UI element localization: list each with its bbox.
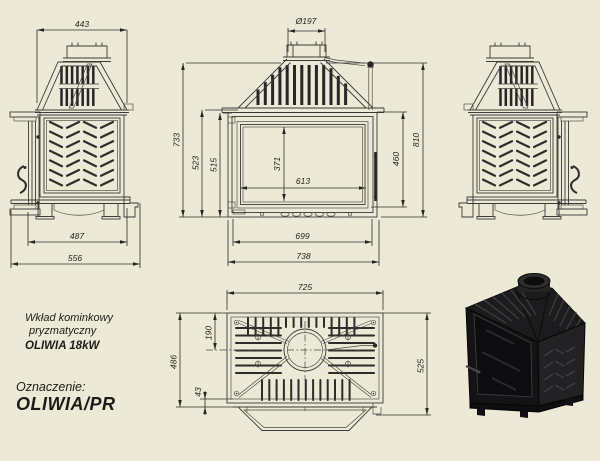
door-frame: [232, 117, 373, 213]
dim-523: 523: [191, 156, 201, 170]
product-label: Wkład kominkowy pryzmatyczny OLIWIA 18kW: [25, 312, 113, 353]
hinge: [228, 117, 235, 123]
technical-drawing-sheet: 443 487 556: [0, 0, 600, 461]
dim-190: 190: [204, 326, 214, 340]
air-louvers: [260, 212, 351, 216]
glass: [241, 125, 366, 205]
ash-pan: [495, 204, 545, 216]
door-frame-side: [29, 117, 40, 209]
door-handle-side: [571, 166, 579, 193]
fender-inner: [244, 407, 366, 428]
top-plan-view: 725 486 190 43 525: [169, 282, 432, 431]
cornice-bottom-2: [561, 205, 583, 209]
side-panel-inner: [47, 121, 118, 191]
product-name-line3: OLIWIA 18kW: [25, 339, 113, 353]
handle-pivot: [24, 166, 27, 169]
leg-foot: [543, 217, 561, 220]
dim-460: 460: [391, 152, 401, 166]
cornice-bottom: [10, 209, 40, 215]
body-front: [228, 113, 377, 218]
left-side-view: 443 487 556: [10, 19, 140, 268]
dim-810: 810: [411, 133, 421, 147]
render-leg: [520, 410, 528, 418]
handle-mount: [374, 155, 377, 158]
dim-725: 725: [298, 282, 312, 292]
dim-699: 699: [295, 231, 309, 241]
top-plate: [468, 110, 562, 115]
render-handle-knob: [478, 371, 481, 374]
cornice-top-2: [14, 117, 36, 121]
flue-collar-front: [283, 42, 330, 61]
hinge-pin: [557, 135, 560, 138]
flue-collar-side: [63, 43, 111, 62]
designation-block: Oznaczenie: OLIWIA/PR: [16, 380, 116, 415]
hood-ribs: [257, 65, 348, 105]
3d-render: [466, 274, 585, 419]
cornice-bottom: [557, 209, 587, 215]
render-collar-hole: [524, 277, 545, 286]
render-leg: [565, 398, 573, 406]
dim-flue-diameter: Ø197: [295, 16, 317, 26]
leg: [104, 204, 118, 217]
dim-43: 43: [193, 387, 203, 397]
hinge: [228, 202, 235, 208]
side-bracket: [373, 403, 381, 414]
right-side-view: [459, 43, 587, 220]
latch: [233, 210, 245, 214]
designation-value: OLIWIA/PR: [16, 394, 116, 415]
plan-view-extension-lines: [176, 290, 431, 415]
body-side: [473, 115, 557, 197]
top-plate: [222, 108, 384, 113]
leg-foot: [477, 217, 495, 220]
designation-label: Oznaczenie:: [16, 380, 116, 394]
top-plate: [35, 110, 129, 115]
dim-613: 613: [296, 176, 310, 186]
chevron-pattern: [483, 122, 546, 185]
dim-487: 487: [70, 231, 84, 241]
handle-mount: [374, 196, 377, 199]
product-name-line2: pryzmatyczny: [29, 325, 113, 338]
damper-knob-plan: [373, 343, 377, 347]
hinge-pin: [36, 135, 39, 138]
dim-515: 515: [209, 158, 219, 172]
leg-foot: [102, 217, 120, 220]
dim-371: 371: [272, 157, 282, 171]
front-view: Ø197 733 523 515 371 613 460 810 699 738: [172, 16, 428, 266]
door-frame-side: [558, 117, 569, 209]
leg: [479, 204, 493, 217]
damper-rod-plan: [326, 346, 377, 351]
render-leg: [477, 408, 485, 416]
cornice-bottom-2: [14, 205, 36, 209]
body-side: [40, 115, 124, 197]
leg-foot: [36, 217, 54, 220]
damper-knob: [367, 61, 373, 67]
handle-pivot: [571, 166, 574, 169]
chevron-pattern: [50, 122, 113, 185]
dim-525: 525: [416, 359, 426, 373]
side-panel-inner: [480, 121, 551, 191]
ash-pan: [54, 204, 104, 216]
dim-738: 738: [296, 251, 310, 261]
cornice-top-2: [561, 117, 583, 121]
dim-443: 443: [75, 19, 89, 29]
glass-inner: [243, 127, 363, 202]
dim-733: 733: [172, 133, 182, 147]
flue-collar-side: [486, 43, 534, 62]
dim-486: 486: [169, 355, 179, 369]
door-frame-inner: [237, 122, 368, 209]
product-name-line1: Wkład kominkowy: [25, 312, 113, 325]
dim-556: 556: [68, 253, 82, 263]
door-handle-side: [18, 166, 26, 193]
